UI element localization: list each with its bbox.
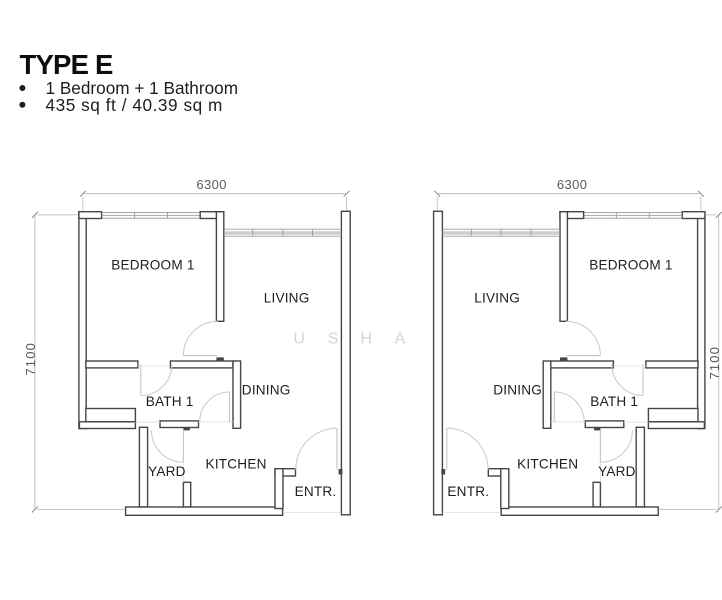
svg-text:LIVING: LIVING — [474, 291, 520, 306]
svg-text:BATH 1: BATH 1 — [146, 394, 194, 409]
svg-text:DINING: DINING — [242, 383, 291, 398]
svg-text:ENTR.: ENTR. — [295, 484, 337, 499]
svg-text:DINING: DINING — [493, 383, 542, 398]
svg-text:U: U — [293, 331, 305, 348]
svg-text:BEDROOM 1: BEDROOM 1 — [589, 258, 672, 273]
svg-text:6300: 6300 — [196, 177, 227, 192]
svg-text:7100: 7100 — [707, 346, 722, 380]
svg-text:BATH 1: BATH 1 — [590, 394, 638, 409]
svg-text:LIVING: LIVING — [264, 291, 310, 306]
svg-text:YARD: YARD — [598, 464, 636, 479]
svg-text:7100: 7100 — [23, 342, 38, 376]
svg-text:TYPE E: TYPE E — [20, 49, 113, 80]
svg-text:BEDROOM 1: BEDROOM 1 — [111, 258, 194, 273]
svg-text:YARD: YARD — [148, 464, 186, 479]
svg-text:6300: 6300 — [557, 177, 588, 192]
svg-text:ENTR.: ENTR. — [447, 484, 489, 499]
svg-text:A: A — [395, 331, 406, 348]
svg-text:435 sq ft / 40.39 sq m: 435 sq ft / 40.39 sq m — [46, 95, 223, 115]
svg-text:KITCHEN: KITCHEN — [206, 456, 267, 471]
svg-text:KITCHEN: KITCHEN — [517, 456, 578, 471]
svg-text:H: H — [361, 331, 373, 348]
svg-text:S: S — [328, 331, 339, 348]
